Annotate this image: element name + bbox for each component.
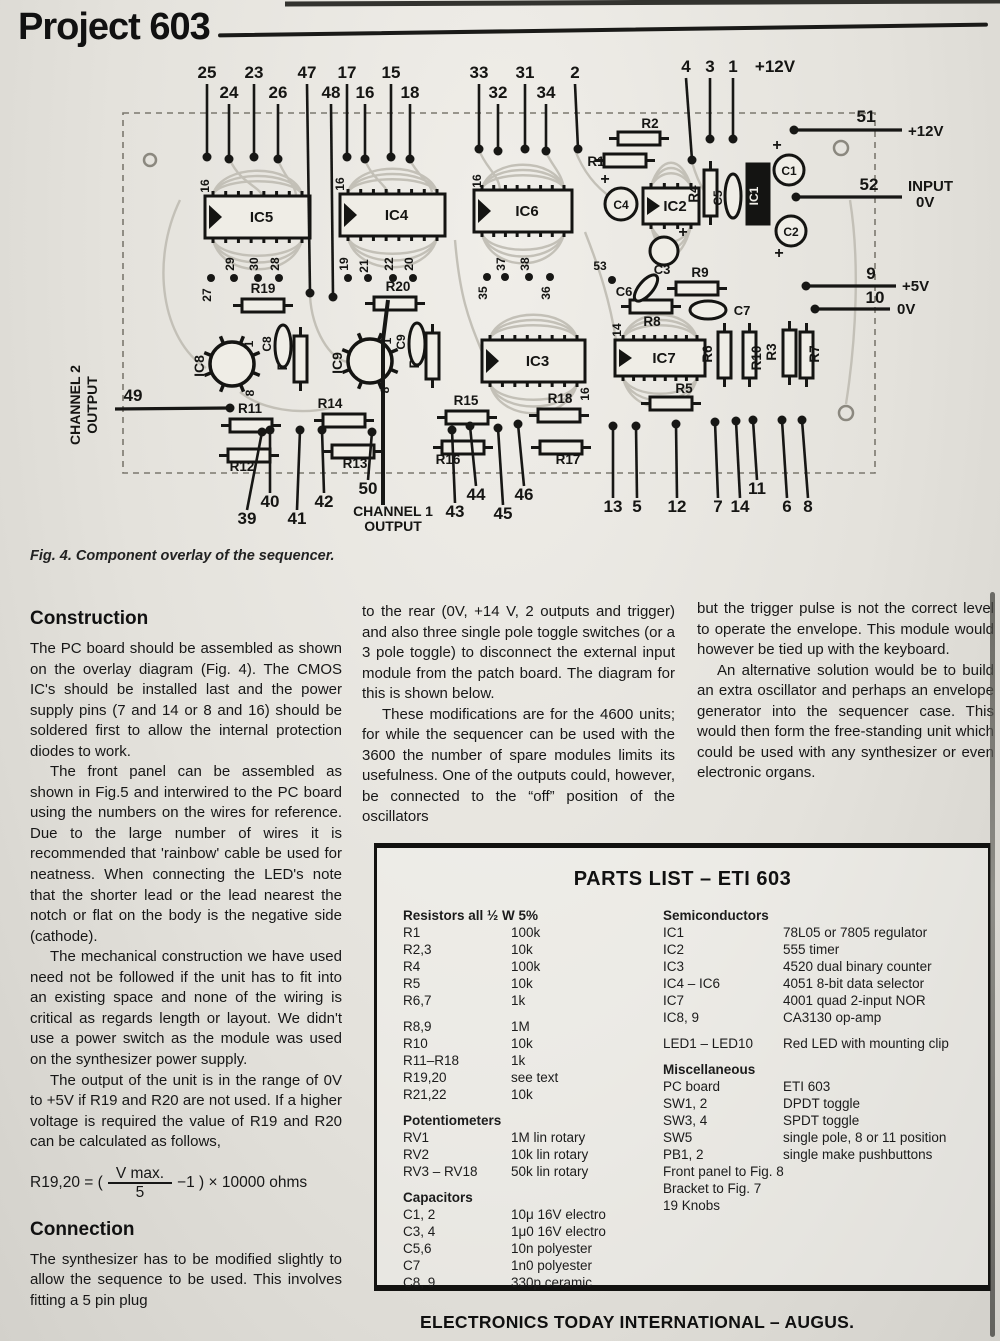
pin-label: 24 [220,83,239,102]
pin-leader-line [676,424,677,498]
paragraph: The PC board should be assembled as show… [30,639,342,762]
pin-leader-line [636,426,637,498]
inner-pin-label: 8 [378,386,392,393]
paragraph: The output of the unit is in the range o… [30,1071,342,1153]
resistor-label: R3 [764,343,779,361]
polarity-plus: + [600,171,609,188]
parts-row: IC4 – IC64051 8-bit data selector [663,975,989,992]
part-value: 100k [511,924,651,941]
ic-label: IC8 [191,355,207,377]
net-label: +5V [902,278,929,295]
solder-pad [672,420,681,429]
inner-pin-label: 1 [380,337,394,344]
part-value: 10k lin rotary [511,1146,651,1163]
inner-pin-label: 22 [382,257,396,271]
ic-label: IC1 [747,186,761,205]
part-name: RV2 [403,1146,511,1163]
capacitor-label: C9 [394,334,408,350]
pin-leader-line [498,428,503,505]
resistor-label: R16 [436,452,461,467]
resistor-label: R12 [230,459,255,474]
formula-numerator: V max. [108,1165,172,1184]
part-value: 1M lin rotary [511,1129,651,1146]
solder-pad [329,293,338,302]
part-name: RV1 [403,1129,511,1146]
channel1-output-label: OUTPUT [364,518,422,534]
channel1-trace [383,300,388,505]
part-value: 1μ0 16V electro [511,1223,651,1240]
inner-pin-label: 8 [243,389,257,396]
mounting-hole [144,154,156,166]
part-name: R11–R18 [403,1052,511,1069]
parts-section-title: Potentiometers [403,1112,651,1129]
part-name: R21,22 [403,1086,511,1103]
solder-pad [483,273,491,281]
parts-row: IC8, 9CA3130 op-amp [663,1009,989,1026]
inner-pin-label: 28 [268,257,282,271]
part-value: 330p ceramic [511,1274,651,1291]
part-name: R4 [403,958,511,975]
pin-label: 41 [288,509,307,528]
resistor-body [426,333,439,379]
solder-pad [409,274,417,282]
capacitor-label: C7 [734,303,751,318]
part-value: 555 timer [783,941,989,958]
parts-section: Resistors all ½ W 5%R1100kR2,310kR4100kR… [403,907,651,1009]
solder-pad [608,276,616,284]
inner-pin-label: 37 [494,257,508,271]
part-name: R2,3 [403,941,511,958]
part-value: 10k [511,1086,651,1103]
parts-list-box: PARTS LIST – ETI 603 Resistors all ½ W 5… [374,843,991,1291]
part-name: PB1, 2 [663,1146,783,1163]
solder-pad [802,282,811,291]
paragraph: The front panel can be assembled as show… [30,762,342,947]
solder-pad [364,274,372,282]
pin-leader-line [470,426,476,486]
parts-list-columns: Resistors all ½ W 5%R1100kR2,310kR4100kR… [403,907,988,1247]
polarity-plus: + [772,137,781,154]
part-value: 4001 quad 2-input NOR [783,992,989,1009]
pin-leader-line [736,421,740,498]
solder-pad [501,273,509,281]
part-name: R1 [403,924,511,941]
parts-extra-line: Front panel to Fig. 8 [663,1163,989,1180]
part-name: IC7 [663,992,783,1009]
part-value: single make pushbuttons [783,1146,989,1163]
parts-list-right-column: SemiconductorsIC178L05 or 7805 regulator… [663,907,989,1223]
resistor-body [446,411,488,424]
inner-pin-label: 19 [337,257,351,271]
pin-label: 8 [803,497,812,516]
inner-pin-label: 16 [578,387,592,401]
parts-row: R8,91M [403,1018,651,1035]
resistor-label: R11 [238,401,263,416]
resistor-label: R9 [691,265,708,280]
solder-pad [494,147,503,156]
part-name: R19,20 [403,1069,511,1086]
pin-label: 43 [446,502,465,521]
parts-row: C8, 9330p ceramic [403,1274,651,1291]
ic-label: IC9 [329,352,345,374]
resistor-body [242,299,284,312]
resistor-body [323,414,365,427]
part-name: SW3, 4 [663,1112,783,1129]
solder-pad [706,135,715,144]
part-value: ETI 603 [783,1078,989,1095]
part-name: C8, 9 [403,1274,511,1291]
mounting-hole [834,141,848,155]
article-column-2: to the rear (0V, +14 V, 2 outputs and tr… [362,602,675,828]
pin-leader-line [331,104,333,297]
solder-pad [790,126,799,135]
part-value: 10k [511,1035,651,1052]
parts-row: PB1, 2single make pushbuttons [663,1146,989,1163]
pin-label: 48 [322,83,341,102]
resistor-body [650,397,692,410]
pin-label: 13 [604,497,623,516]
parts-row: LED1 – LED10Red LED with mounting clip [663,1035,989,1052]
part-name: IC4 – IC6 [663,975,783,992]
part-value: see text [511,1069,651,1086]
pin-leader-line [686,78,692,160]
pin-label: 15 [382,63,401,82]
pin-label: 16 [356,83,375,102]
part-value: single pole, 8 or 11 position [783,1129,989,1146]
inner-pin-label: 38 [518,257,532,271]
parts-section-title: Semiconductors [663,907,989,924]
mounting-hole [839,406,853,420]
resistor-label: R17 [556,452,581,467]
pin-label: 42 [315,492,334,511]
pin-label: 25 [198,63,217,82]
parts-row: RV210k lin rotary [403,1146,651,1163]
parts-row: RV11M lin rotary [403,1129,651,1146]
part-value: 1k [511,992,651,1009]
solder-pad [296,426,305,435]
parts-row: R6,71k [403,992,651,1009]
solder-pad [274,155,283,164]
formula-rhs: −1 ) × 10000 ohms [177,1172,307,1193]
resistor-label: R7 [807,345,822,362]
part-name: R10 [403,1035,511,1052]
ic-label: IC7 [652,350,675,367]
pin-leader-line [322,430,324,493]
pin-label: 39 [238,509,257,528]
parts-row: C1, 210μ 16V electro [403,1206,651,1223]
paragraph: but the trigger pulse is not the correct… [697,599,994,661]
resistor-body [294,336,307,382]
part-name: IC3 [663,958,783,975]
solder-pad [792,193,801,202]
pin-label: 51 [857,107,876,126]
pin-label: 40 [261,492,280,511]
paragraph: The synthesizer has to be modified sligh… [30,1250,342,1312]
solder-pad [732,417,741,426]
paragraph: The mechanical construction we have used… [30,947,342,1070]
solder-pad [546,273,554,281]
parts-extra-line: 19 Knobs [663,1197,989,1214]
inner-pin-label: 16 [198,179,212,193]
pin-label: 5 [632,497,641,516]
parts-section-title: Resistors all ½ W 5% [403,907,651,924]
inner-pin-label: 14 [610,323,624,337]
pin-label: 9 [866,264,875,283]
part-name: C1, 2 [403,1206,511,1223]
part-value: 10k [511,941,651,958]
capacitor-label: C4 [613,198,629,212]
capacitor-label: C6 [616,284,633,299]
article-column-1: Construction The PC board should be asse… [30,606,342,1311]
capacitor-label: C1 [781,164,797,178]
figure-pcb-component-overlay: IC5IC4IC6IC3IC7IC2IC1IC8IC9R1R2R4R19R20R… [0,0,1000,545]
part-value: 4520 dual binary counter [783,958,989,975]
resistor-label: R6 [700,345,715,363]
capacitor-label: C8 [260,336,274,352]
solder-pad [207,274,215,282]
ic-label: IC5 [250,209,273,226]
part-value: 50k lin rotary [511,1163,651,1180]
inner-pin-label: 29 [223,257,237,271]
parts-row: C71n0 polyester [403,1257,651,1274]
channel2-output-label: OUTPUT [84,376,100,434]
part-value: 10n polyester [511,1240,651,1257]
solder-pad [632,422,641,431]
solder-pad [266,426,275,435]
ic-body [210,342,254,386]
pin-label: +12V [755,57,796,76]
solder-pad [514,420,523,429]
solder-pad [387,153,396,162]
copper-trace [846,200,856,404]
pin-label: 1 [728,57,737,76]
polarity-plus: + [678,224,687,241]
parts-row: R21,2210k [403,1086,651,1103]
solder-pad [389,274,397,282]
channel2-output-label: CHANNEL 2 [67,365,83,445]
solder-pad [258,428,267,437]
pin-label: 7 [713,497,722,516]
resistor-body [783,330,796,376]
polarity-plus: + [774,245,783,262]
parts-section: LED1 – LED10Red LED with mounting clip [663,1035,989,1052]
inner-pin-label: 30 [247,257,261,271]
capacitor-body [650,237,678,265]
solder-pad [448,426,457,435]
part-name: IC8, 9 [663,1009,783,1026]
inner-pin-label: 21 [357,259,371,273]
parts-list-title: PARTS LIST – ETI 603 [377,868,988,891]
solder-pad [318,426,327,435]
parts-row: RV3 – RV1850k lin rotary [403,1163,651,1180]
resistor-body [676,282,718,295]
pin-label: 46 [515,485,534,504]
parts-row: R11–R181k [403,1052,651,1069]
part-value: DPDT toggle [783,1095,989,1112]
solder-pad [494,424,503,433]
solder-pad [542,147,551,156]
pin-label: 50 [359,479,378,498]
parts-row: R1100k [403,924,651,941]
section-heading-connection: Connection [30,1217,342,1243]
parts-row: IC2555 timer [663,941,989,958]
parts-row: R510k [403,975,651,992]
scan-right-edge-shadow [990,592,995,1337]
resistor-formula: R19,20 = ( V max. 5 −1 ) × 10000 ohms [30,1165,342,1201]
resistor-label: R13 [343,456,368,471]
ic-label: IC4 [385,207,409,224]
solder-pad [226,404,235,413]
part-value: 10k [511,975,651,992]
resistor-label: R20 [386,279,411,294]
parts-row: SW1, 2DPDT toggle [663,1095,989,1112]
ic-label: IC2 [663,198,686,215]
pin-label: 32 [489,83,508,102]
resistor-label: R2 [641,116,658,131]
solder-pad [778,416,787,425]
parts-row: IC34520 dual binary counter [663,958,989,975]
capacitor-label: C5 [711,190,725,206]
capacitor-body [275,325,291,367]
pin-label: 3 [705,57,714,76]
parts-extra-line: Bracket to Fig. 7 [663,1180,989,1197]
solder-pad [406,155,415,164]
capacitor-body [690,301,726,319]
resistor-body [374,297,416,310]
pin-leader-line [753,420,757,480]
part-value: CA3130 op-amp [783,1009,989,1026]
solder-pad [609,422,618,431]
inner-pin-label: 16 [333,177,347,191]
paragraph: These modifications are for the 4600 uni… [362,705,675,828]
resistor-label: R14 [318,396,343,411]
figure-caption: Fig. 4. Component overlay of the sequenc… [30,548,335,564]
parts-row: IC74001 quad 2-input NOR [663,992,989,1009]
pin-label: 6 [782,497,791,516]
pin-label: 34 [537,83,556,102]
part-name: C3, 4 [403,1223,511,1240]
resistor-body [604,154,646,167]
parts-row: R19,20see text [403,1069,651,1086]
solder-pad [230,274,238,282]
solder-pad [466,422,475,431]
pin-label: 17 [338,63,357,82]
inner-pin-label: 20 [402,257,416,271]
parts-section: R8,91MR1010kR11–R181kR19,20see textR21,2… [403,1018,651,1103]
part-name: SW5 [663,1129,783,1146]
resistor-label: R19 [251,281,276,296]
pin-leader-line [307,84,310,293]
pin-leader-line [575,84,578,149]
part-value: 1n0 polyester [511,1257,651,1274]
parts-row: IC178L05 or 7805 regulator [663,924,989,941]
part-name: R8,9 [403,1018,511,1035]
pin-label: 14 [731,497,750,516]
resistor-label: R1 [587,154,605,169]
resistor-label: R18 [548,391,573,406]
resistor-body [538,409,580,422]
solder-pad [811,305,820,314]
pin-label: 4 [681,57,691,76]
resistor-label: R15 [454,393,479,408]
magazine-page: Project 603 IC5IC4IC6IC3IC7IC2IC1IC8IC9R… [0,0,1000,1341]
part-name: SW1, 2 [663,1095,783,1112]
pin-leader-line [518,424,524,486]
parts-row: SW3, 4SPDT toggle [663,1112,989,1129]
part-name: C7 [403,1257,511,1274]
solder-pad [306,289,315,298]
parts-section: SemiconductorsIC178L05 or 7805 regulator… [663,907,989,1026]
pin-label: 52 [860,175,879,194]
formula-denominator: 5 [136,1184,145,1201]
pin-label: 23 [245,63,264,82]
inner-pin-label: 27 [200,288,214,302]
part-value: 78L05 or 7805 regulator [783,924,989,941]
parts-row: C3, 41μ0 16V electro [403,1223,651,1240]
pin-label: 18 [401,83,420,102]
parts-row: SW5single pole, 8 or 11 position [663,1129,989,1146]
resistor-label: R4 [686,185,701,203]
pin-label: 31 [516,63,535,82]
pin-label: 33 [470,63,489,82]
pin-label: 10 [866,288,885,307]
solder-pad [729,135,738,144]
resistor-label: R10 [749,346,764,371]
resistor-label: R8 [643,314,661,329]
part-name: RV3 – RV18 [403,1163,511,1180]
part-value: 1k [511,1052,651,1069]
parts-section-title: Miscellaneous [663,1061,989,1078]
solder-pad [361,155,370,164]
net-label: INPUT0V [908,178,953,211]
parts-row: C5,610n polyester [403,1240,651,1257]
parts-section: MiscellaneousPC boardETI 603SW1, 2DPDT t… [663,1061,989,1214]
parts-section: PotentiometersRV11M lin rotaryRV210k lin… [403,1112,651,1180]
resistor-body [618,132,660,145]
parts-row: R4100k [403,958,651,975]
capacitor-body [725,174,741,218]
capacitor-body [409,323,425,365]
part-name: IC2 [663,941,783,958]
part-name: LED1 – LED10 [663,1035,783,1052]
part-value: Red LED with mounting clip [783,1035,989,1052]
paragraph: to the rear (0V, +14 V, 2 outputs and tr… [362,602,675,705]
solder-pad [798,416,807,425]
formula-fraction: V max. 5 [108,1165,172,1201]
solder-pad [749,416,758,425]
ic-label: IC6 [515,203,538,220]
pin-leader-line [782,420,787,498]
solder-pad [525,273,533,281]
inner-pin-label: 16 [470,174,484,188]
pin-label: 12 [668,497,687,516]
paragraph: An alternative solution would be to buil… [697,661,994,784]
section-heading-construction: Construction [30,606,342,632]
pin-label: 49 [124,386,143,405]
part-name: C5,6 [403,1240,511,1257]
copper-trace [163,200,206,368]
parts-row: R2,310k [403,941,651,958]
pin-leader-line [297,430,300,510]
pin-label: 47 [298,63,317,82]
pin-leader-line [802,420,808,498]
solder-pad [203,153,212,162]
solder-pad [225,155,234,164]
pin-label: 45 [494,504,513,523]
pin-label: 26 [269,83,288,102]
inner-pin-label: 36 [539,286,553,300]
formula-lhs: R19,20 = ( [30,1172,103,1193]
